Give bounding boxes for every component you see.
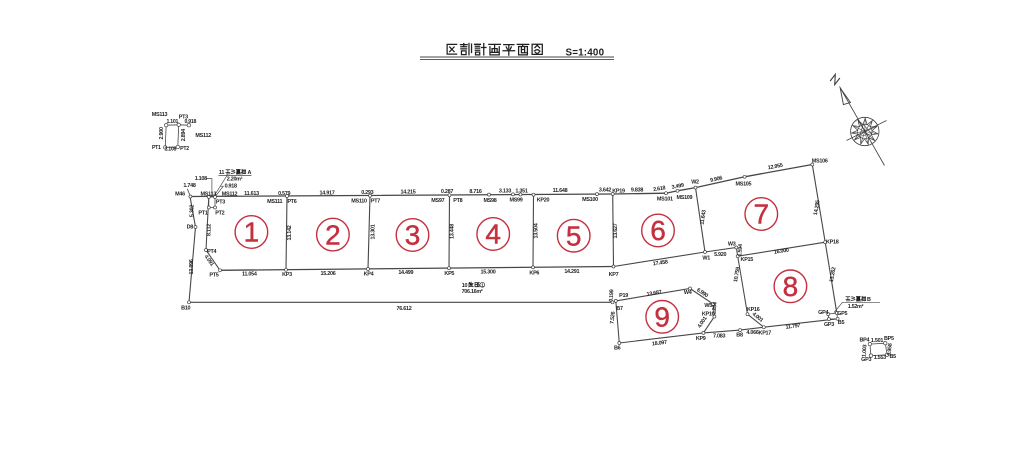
svg-text:9.838: 9.838 [631,188,643,194]
svg-text:MS110: MS110 [351,199,367,205]
svg-text:KP19: KP19 [612,188,625,194]
svg-text:B8: B8 [736,333,743,339]
svg-text:0.287: 0.287 [441,189,453,195]
svg-text:B5: B5 [838,320,845,326]
svg-text:PT2: PT2 [215,211,224,217]
svg-text:7.083: 7.083 [713,333,725,339]
svg-text:W1: W1 [702,256,710,262]
svg-text:76.612: 76.612 [397,306,412,312]
svg-text:1.108: 1.108 [165,147,177,153]
svg-text:GP4: GP4 [818,310,828,316]
svg-text:BP5: BP5 [884,336,894,342]
svg-text:11.648: 11.648 [553,188,568,194]
svg-text:B7: B7 [616,306,623,312]
svg-text:W2: W2 [691,180,699,186]
svg-text:KP17: KP17 [759,330,772,336]
svg-text:D8: D8 [187,225,194,231]
svg-text:MS100: MS100 [582,197,598,203]
svg-text:PT6: PT6 [287,199,296,205]
svg-text:0.579: 0.579 [278,191,290,197]
svg-text:14.499: 14.499 [398,270,413,276]
svg-text:1.101: 1.101 [167,119,179,125]
svg-text:B: B [867,297,871,303]
svg-text:8.716: 8.716 [469,189,481,195]
svg-text:0.918: 0.918 [225,184,237,190]
svg-text:B5: B5 [889,354,896,360]
svg-text:MS99: MS99 [509,198,522,204]
svg-text:13.896: 13.896 [189,259,195,274]
svg-text:MS113: MS113 [201,191,217,197]
svg-text:PT2: PT2 [180,146,189,152]
svg-text:1.553: 1.553 [874,355,886,361]
svg-text:KP3: KP3 [282,272,292,278]
svg-text:15.300: 15.300 [481,270,496,276]
svg-text:2.894: 2.894 [181,129,187,141]
svg-text:KP4: KP4 [364,271,374,277]
svg-text:MS109: MS109 [676,195,692,201]
svg-text:M46: M46 [175,192,185,198]
svg-text:14.215: 14.215 [401,190,416,196]
svg-text:13.627: 13.627 [613,223,619,238]
svg-text:2: 2 [325,219,341,250]
svg-text:PT8: PT8 [453,198,462,204]
svg-text:KP6: KP6 [529,270,539,276]
svg-text:15.206: 15.206 [321,271,336,277]
svg-text:1.594: 1.594 [737,244,744,257]
svg-text:KP15: KP15 [741,257,754,263]
svg-text:W4: W4 [684,290,692,296]
svg-text:BP4: BP4 [860,337,870,343]
svg-text:MS101: MS101 [657,197,673,203]
svg-text:6: 6 [650,215,666,246]
svg-text:1.108: 1.108 [195,176,207,182]
svg-text:GP3: GP3 [824,322,834,328]
svg-text:KP18: KP18 [826,239,839,245]
svg-text:PT1: PT1 [152,145,161,151]
svg-text:GP5: GP5 [837,311,847,317]
svg-text:MS105: MS105 [735,182,751,188]
svg-text:3: 3 [405,220,421,251]
svg-text:9: 9 [654,302,670,333]
svg-text:MS97: MS97 [431,198,444,204]
svg-text:706.16m²: 706.16m² [462,289,483,295]
svg-text:MS112: MS112 [195,133,211,139]
svg-text:PT3: PT3 [216,199,225,205]
svg-text:13.504: 13.504 [533,223,539,238]
svg-text:13.142: 13.142 [287,225,293,240]
svg-text:5: 5 [566,220,582,251]
svg-text:PT1: PT1 [198,211,207,217]
svg-text:MS111: MS111 [267,199,282,205]
svg-text:1.351: 1.351 [515,189,527,195]
svg-text:KP20: KP20 [537,197,550,203]
svg-text:KP9: KP9 [696,336,706,342]
svg-text:0.293: 0.293 [361,190,373,196]
svg-text:1.748: 1.748 [183,183,195,189]
svg-text:MS98: MS98 [483,198,496,204]
svg-text:W3: W3 [728,242,736,248]
svg-text:2.900: 2.900 [159,127,165,139]
svg-text:1.003: 1.003 [861,344,868,357]
svg-text:P19: P19 [619,293,628,299]
svg-text:B10: B10 [181,306,190,312]
svg-text:13.448: 13.448 [449,224,455,239]
svg-text:13.301: 13.301 [370,224,376,239]
svg-text:KP7: KP7 [609,272,619,278]
svg-text:4.066: 4.066 [746,330,758,336]
svg-text:1: 1 [244,217,260,248]
svg-text:0.918: 0.918 [185,119,197,125]
svg-text:MS106: MS106 [812,159,828,165]
svg-text:PT5: PT5 [209,272,218,278]
svg-text:11.054: 11.054 [242,272,257,278]
svg-text:11.613: 11.613 [244,191,259,197]
svg-text:0.199: 0.199 [608,289,615,302]
svg-text:14.917: 14.917 [320,190,335,196]
svg-text:2.20m²: 2.20m² [227,177,243,183]
svg-text:5.920: 5.920 [714,252,726,258]
svg-text:MS112: MS112 [222,192,238,198]
svg-text:7: 7 [754,199,770,230]
svg-text:PT7: PT7 [371,198,380,204]
svg-text:1.52m²: 1.52m² [848,304,864,310]
svg-text:4: 4 [485,219,501,250]
svg-text:3.133: 3.133 [499,189,511,195]
svg-text:GP3: GP3 [861,357,871,363]
svg-text:B6: B6 [614,346,621,352]
svg-text:8.112: 8.112 [207,224,213,236]
svg-text:1.501: 1.501 [871,338,883,344]
svg-text:KP5: KP5 [444,271,454,277]
svg-text:8: 8 [783,271,799,302]
svg-text:MS113: MS113 [152,112,168,118]
svg-text:14.291: 14.291 [564,269,579,275]
svg-text:3.642: 3.642 [599,188,611,194]
svg-text:5.302: 5.302 [189,205,195,217]
